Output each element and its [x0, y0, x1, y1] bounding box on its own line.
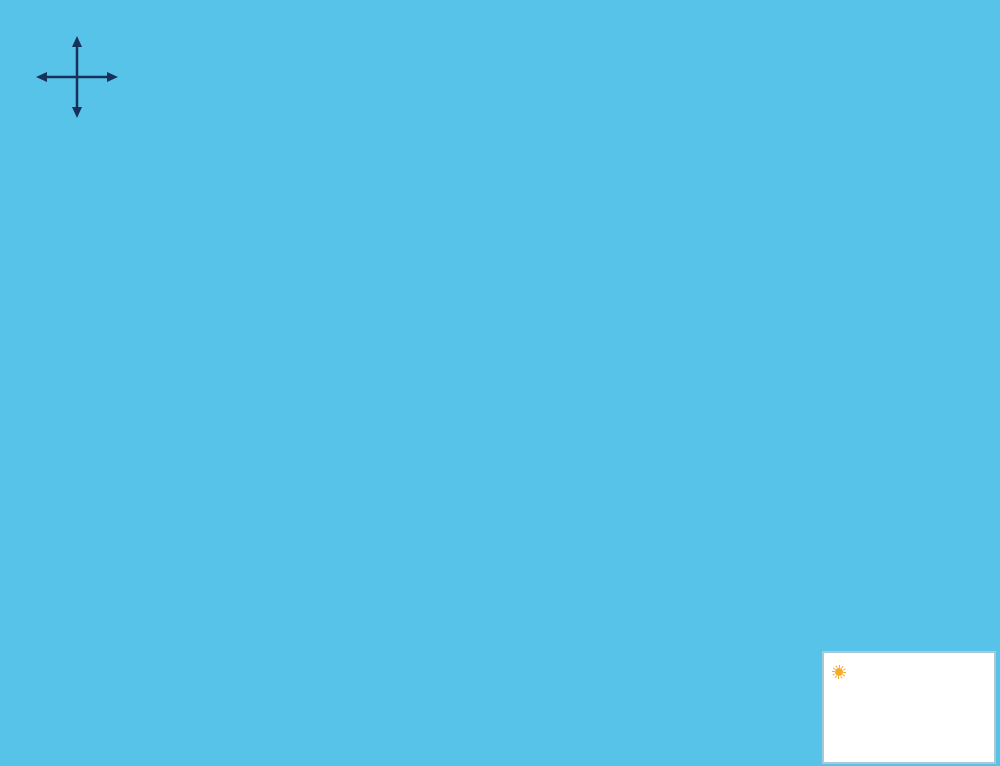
- realty-logo: [832, 665, 986, 709]
- realty-logo-mark-icon: [834, 667, 870, 707]
- compass-arrows-icon: [22, 22, 132, 132]
- info-box: [822, 651, 996, 764]
- resort-site-map: [0, 0, 1000, 766]
- sun-icon: [832, 665, 846, 679]
- compass-rose: [22, 22, 132, 132]
